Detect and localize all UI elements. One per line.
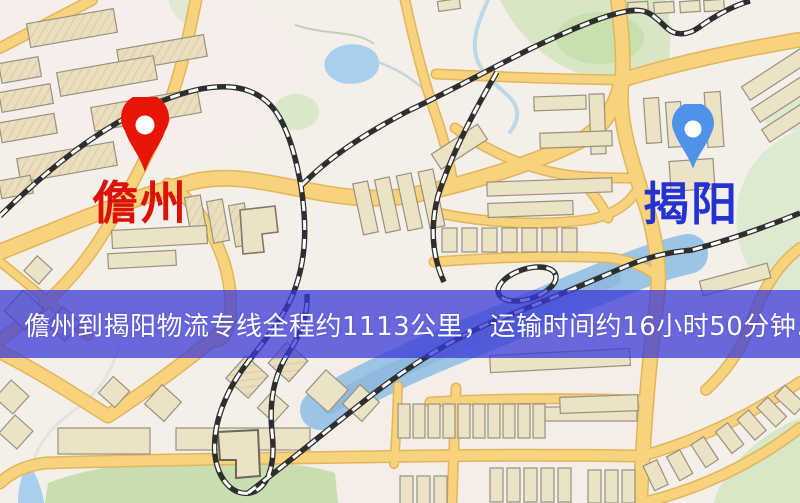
origin-pin-icon[interactable] xyxy=(117,97,173,175)
destination-pin-icon[interactable] xyxy=(668,104,718,172)
route-info-banner: 儋州到揭阳物流专线全程约1113公里，运输时间约16小时50分钟. xyxy=(0,290,800,358)
origin-city-label: 儋州 xyxy=(92,180,188,226)
map-canvas xyxy=(0,0,800,503)
map-screenshot: 儋州 揭阳 儋州到揭阳物流专线全程约1113公里，运输时间约16小时50分钟. xyxy=(0,0,800,503)
route-info-text: 儋州到揭阳物流专线全程约1113公里，运输时间约16小时50分钟. xyxy=(0,306,800,343)
destination-city-label: 揭阳 xyxy=(643,181,739,227)
